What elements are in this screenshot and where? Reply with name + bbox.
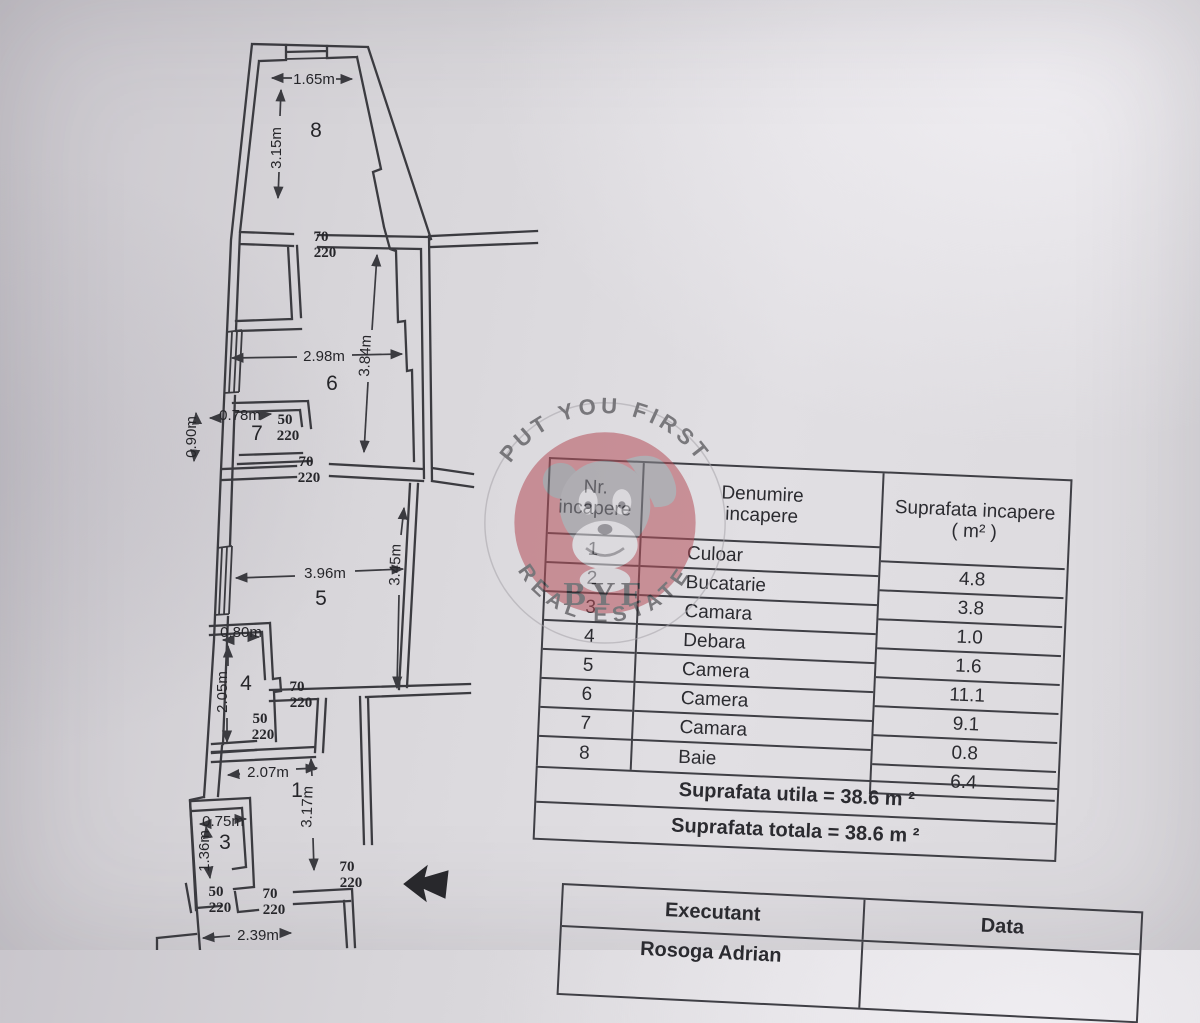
data-value-cell (860, 942, 1139, 1021)
door-size-label: 220 (209, 900, 232, 916)
room-number-cell: 4 (543, 621, 636, 654)
room-number-label: 5 (315, 587, 327, 610)
door-size-label: 50 (253, 711, 268, 727)
room-number-label: 7 (251, 422, 263, 445)
door-size-label: 70 (263, 886, 278, 902)
rooms-table-columns: Nr. incapere 1 2 3 4 5 6 7 8 Denumire in… (536, 457, 1073, 788)
door-size-label: 70 (299, 454, 314, 470)
header-line: Nr. (583, 476, 608, 498)
door-size-label: 220 (340, 875, 363, 891)
dimension-label: 2.39m (237, 927, 279, 944)
room-number-cell: 8 (538, 737, 631, 770)
door-size-label: 70 (340, 859, 355, 875)
room-number-label: 4 (240, 672, 252, 695)
dimension-label: 2.05m (214, 671, 231, 713)
room-number-cell: 5 (542, 650, 635, 683)
room-number-cell: 7 (539, 708, 632, 741)
column-room-area: Suprafata incapere ( m² ) 4.8 3.8 1.0 1.… (869, 473, 1069, 802)
dimension-label: 3.96m (304, 565, 346, 582)
room-number-label: 1 (291, 779, 303, 802)
door-size-label: 70 (314, 229, 329, 245)
floor-plan-drawing: 1.65m 3.15m 2.98m 3.84m 0.78m 0.90m 3.96… (0, 0, 560, 950)
dimension-label: 1.65m (293, 71, 335, 88)
door-size-label: 50 (278, 412, 293, 428)
dimension-label: 1.36m (196, 830, 213, 872)
rooms-table: Nr. incapere 1 2 3 4 5 6 7 8 Denumire in… (533, 457, 1073, 862)
dimension-label: 3.15m (268, 127, 285, 169)
signature-table: Executant Data Rosoga Adrian (557, 883, 1144, 1023)
dimension-label: 2.07m (247, 764, 289, 781)
dimension-label: 3.84m (356, 334, 375, 377)
door-size-label: 220 (290, 695, 313, 711)
door-size-label: 220 (252, 727, 275, 743)
door-size-label: 220 (277, 428, 300, 444)
header-nr-incapere: Nr. incapere (548, 459, 643, 538)
header-denumire-incapere: Denumire incapere (642, 463, 883, 548)
column-room-name: Denumire incapere Culoar Bucatarie Camar… (632, 463, 883, 780)
dimension-label: 0.75m (202, 813, 244, 830)
room-number-cell: 3 (544, 592, 637, 625)
door-size-label: 50 (209, 884, 224, 900)
room-number-cell: 6 (540, 679, 633, 712)
door-size-label: 220 (263, 902, 286, 918)
dimension-label: 3.45m (386, 544, 404, 586)
dimension-label: 0.80m (220, 624, 262, 641)
room-number-cell: 1 (546, 534, 639, 567)
door-size-label: 220 (298, 470, 321, 486)
dimension-label: 0.90m (183, 416, 200, 458)
header-line: incapere (558, 496, 632, 520)
header-line: incapere (725, 503, 799, 527)
room-number-cell: 2 (545, 563, 638, 596)
executant-name-cell: Rosoga Adrian (559, 927, 864, 1008)
room-number-label: 8 (310, 119, 322, 142)
header-suprafata-incapere: Suprafata incapere ( m² ) (881, 473, 1069, 570)
header-line: ( m² ) (951, 520, 997, 543)
dimension-label: 2.98m (303, 348, 345, 365)
room-number-label: 6 (326, 372, 338, 395)
column-room-number: Nr. incapere 1 2 3 4 5 6 7 8 (538, 459, 645, 770)
room-number-label: 3 (219, 831, 231, 854)
door-size-label: 70 (290, 679, 305, 695)
north-arrow-icon (404, 866, 448, 901)
door-size-label: 220 (314, 245, 337, 261)
